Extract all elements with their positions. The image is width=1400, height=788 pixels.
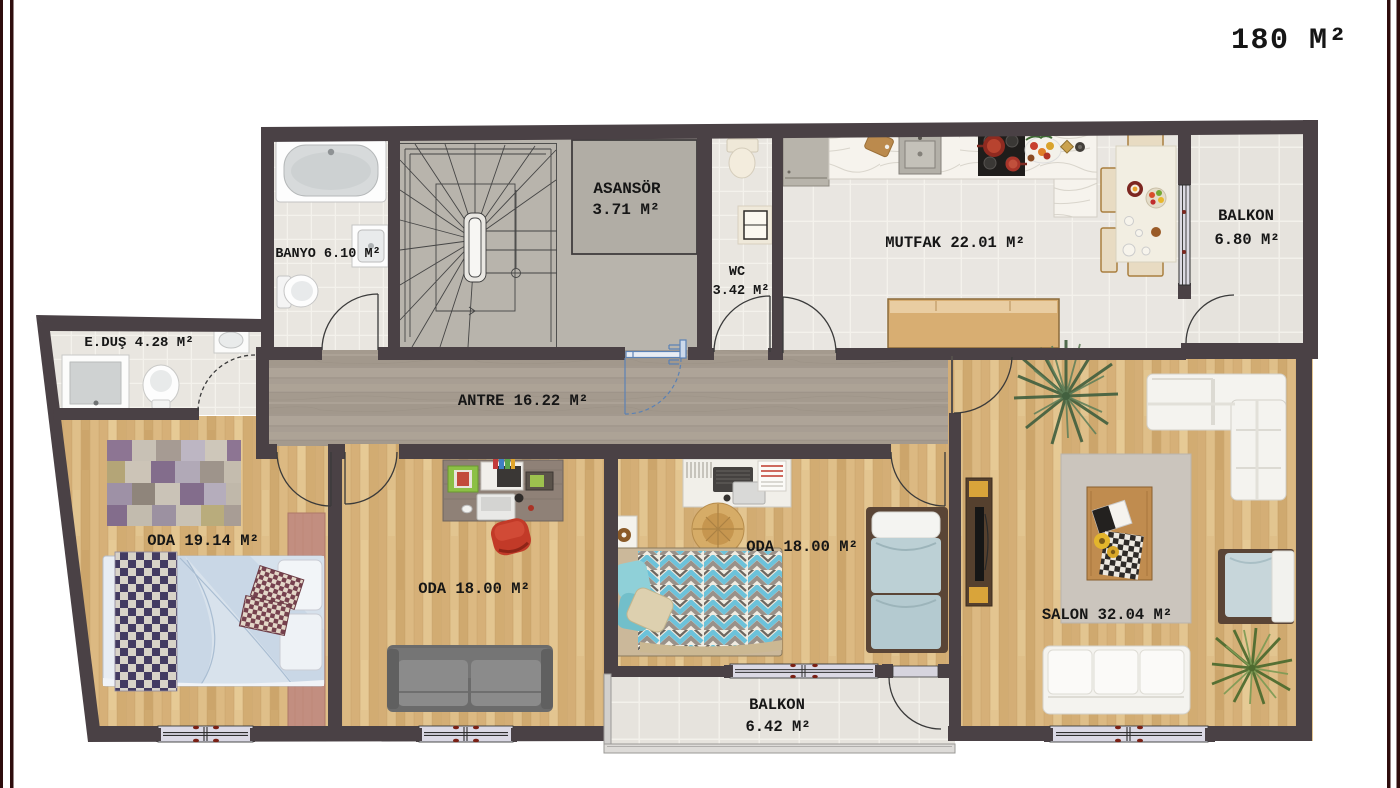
svg-text:ASANSÖR: ASANSÖR [593,179,661,198]
svg-text:ODA 19.14 M²: ODA 19.14 M² [147,532,259,550]
svg-text:BALKON: BALKON [1218,207,1274,225]
svg-text:6.80 M²: 6.80 M² [1214,231,1279,249]
svg-text:ANTRE 16.22 M²: ANTRE 16.22 M² [458,392,588,410]
svg-text:6.42 M²: 6.42 M² [745,718,810,736]
svg-text:SALON 32.04 M²: SALON 32.04 M² [1042,606,1172,624]
svg-text:BANYO 6.10 M²: BANYO 6.10 M² [275,247,380,262]
svg-text:MUTFAK 22.01 M²: MUTFAK 22.01 M² [885,234,1025,252]
svg-text:3.71 M²: 3.71 M² [592,201,659,219]
svg-text:E.DUŞ 4.28 M²: E.DUŞ 4.28 M² [84,335,193,351]
svg-text:180 M²: 180 M² [1231,24,1348,58]
svg-text:ODA 18.00 M²: ODA 18.00 M² [418,580,530,598]
svg-text:WC: WC [729,265,745,280]
svg-text:3.42 M²: 3.42 M² [713,284,770,299]
svg-text:ODA 18.00 M²: ODA 18.00 M² [746,538,858,556]
svg-text:BALKON: BALKON [749,696,805,714]
